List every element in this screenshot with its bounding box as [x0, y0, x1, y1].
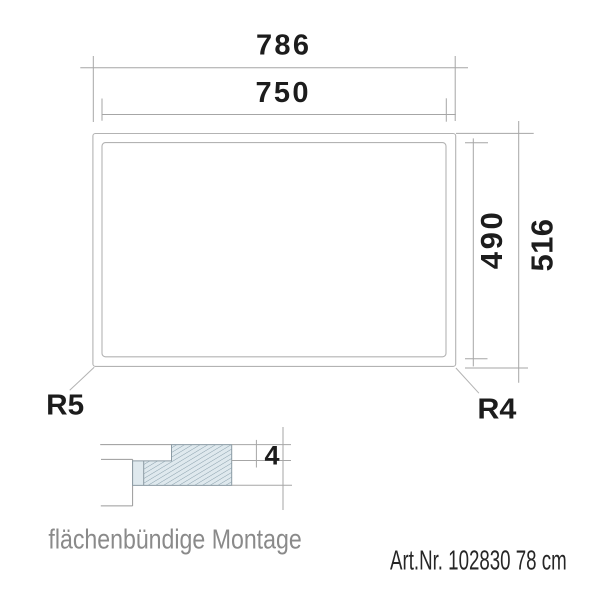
- svg-text:4: 4: [264, 441, 279, 471]
- svg-text:516: 516: [525, 219, 560, 271]
- svg-text:Art.Nr. 102830 78 cm: Art.Nr. 102830 78 cm: [390, 544, 567, 575]
- svg-text:flächenbündige Montage: flächenbündige Montage: [48, 524, 301, 555]
- svg-text:490: 490: [474, 212, 509, 269]
- svg-text:750: 750: [256, 77, 309, 109]
- svg-text:R5: R5: [46, 389, 84, 421]
- svg-text:R4: R4: [477, 394, 516, 426]
- svg-text:786: 786: [256, 29, 309, 61]
